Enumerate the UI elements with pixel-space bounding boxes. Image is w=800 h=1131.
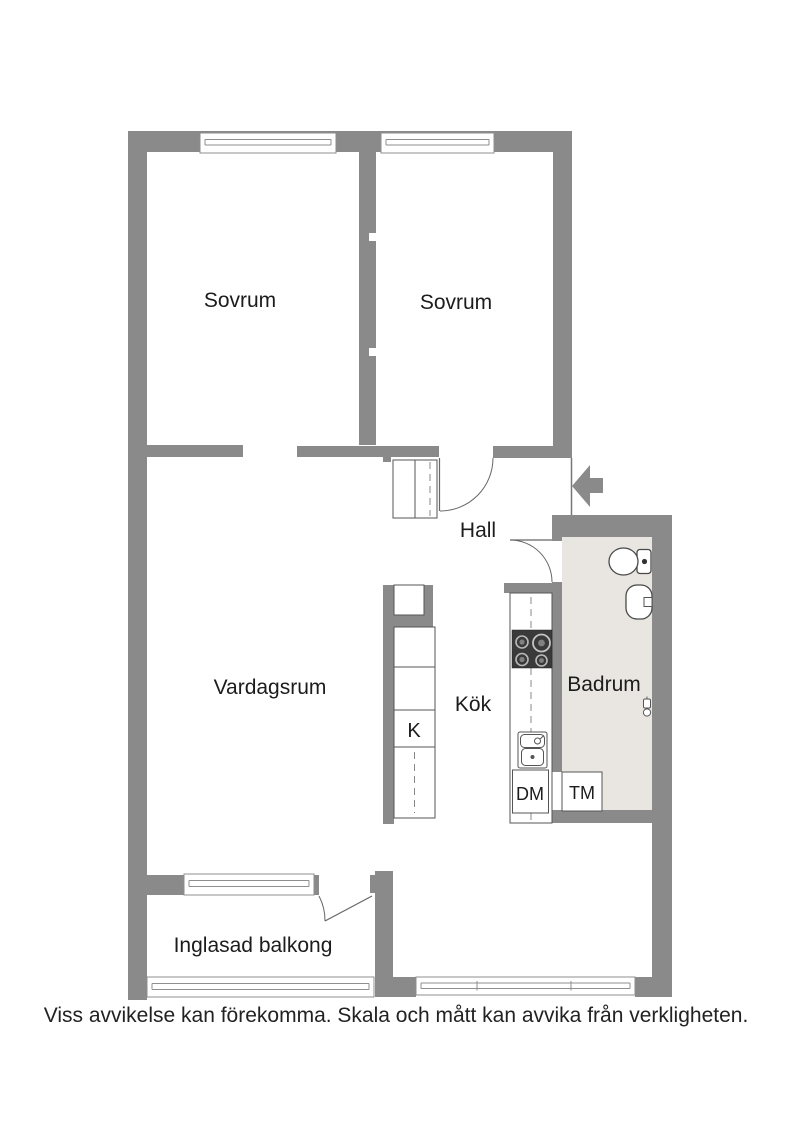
window [200,133,336,153]
wall-segment [394,615,433,627]
wall-segment [552,537,562,541]
interior-walls [147,131,562,824]
wall-segment [359,131,376,445]
stove-icon [512,630,552,668]
room-label-sovrum-1: Sovrum [204,289,276,312]
window [147,977,374,997]
wall-segment [128,131,572,152]
wall-segment [128,131,147,1000]
wall-segment [552,582,562,772]
wall-segment [393,977,416,997]
window [381,133,494,153]
washbasin-icon [626,585,652,619]
wall-segment [493,446,553,458]
wall-notch [369,233,376,241]
window [416,977,635,995]
wall-segment [652,515,672,997]
wall-segment [297,446,439,457]
wall-segment [552,810,652,823]
disclaimer-caption: Viss avvikelse kan förekomma. Skala och … [44,1004,749,1027]
room-label-kok: Kök [455,693,492,716]
bedroom2-door-arc [440,458,493,511]
wall-segment [375,871,393,997]
hall-closet [393,460,437,518]
toilet-icon [609,548,651,575]
entrance-arrow-icon [572,465,603,507]
room-label-sovrum-2: Sovrum [420,291,492,314]
room-label-hall: Hall [460,519,496,542]
wall-segment [147,445,243,457]
room-label-vardagsrum: Vardagsrum [214,676,327,699]
window [184,874,314,895]
wall-notch [369,348,376,356]
shaft [394,585,424,615]
room-label-balkong: Inglasad balkong [174,934,333,957]
entrance [572,458,604,515]
closet-label-k: K [407,720,421,742]
wall-segment [383,457,391,462]
wall-segment [370,875,375,893]
floor-plan-page: Sovrum Sovrum Hall Vardagsrum Kök Badrum… [0,0,800,1131]
floor-drain-icon [643,697,650,717]
kitchen-sink-icon [518,732,547,768]
floor-plan: Sovrum Sovrum Hall Vardagsrum Kök Badrum… [0,0,800,1131]
balcony-door-arc [319,896,325,921]
wall-segment [383,585,394,824]
wall-segment [146,875,185,895]
balcony-door-leaf [325,896,372,921]
wall-segment [553,131,572,458]
appliance-label-dm: DM [516,784,544,804]
bathroom-door-arc [510,540,552,582]
appliance-label-tm: TM [569,783,595,803]
room-label-badrum: Badrum [567,673,641,696]
wall-segment [635,977,672,997]
